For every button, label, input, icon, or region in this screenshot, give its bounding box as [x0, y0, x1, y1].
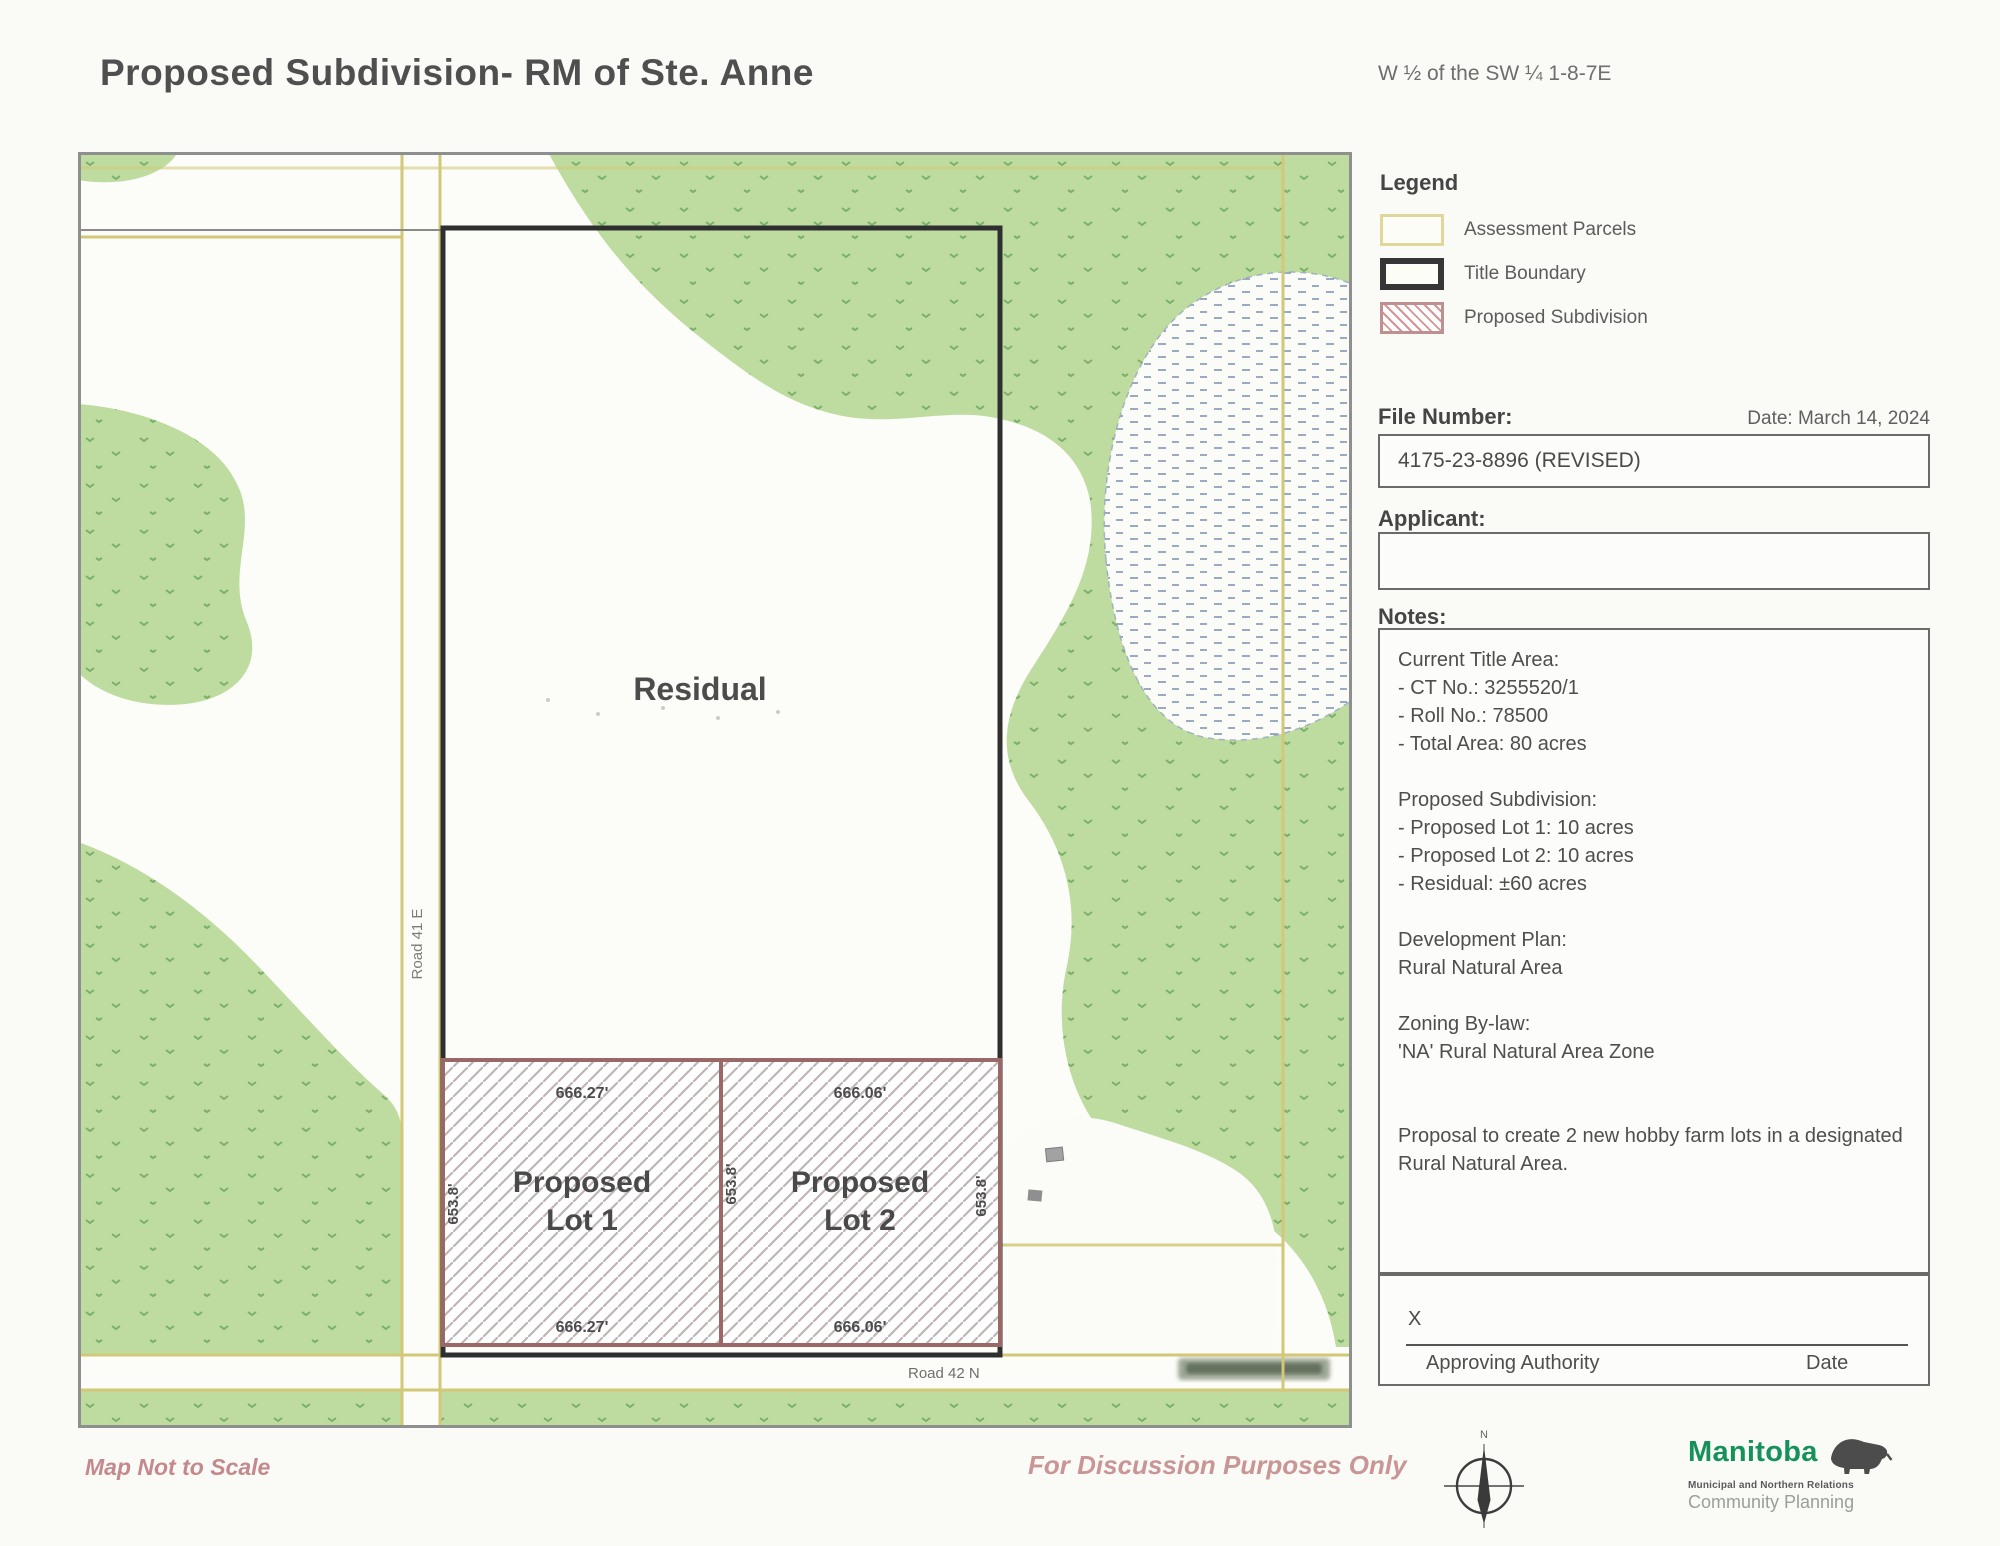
lot1-width-top: 666.27': [556, 1085, 609, 1102]
notes-line: Rural Natural Area: [1398, 954, 1914, 982]
notes-line: - CT No.: 3255520/1: [1398, 674, 1914, 702]
bison-icon: [1824, 1432, 1894, 1478]
approving-authority-label: Approving Authority: [1426, 1352, 1599, 1375]
lot2-depth-right: 653.8': [973, 1175, 990, 1216]
manitoba-logo: Manitoba Municipal and Northern Relation…: [1688, 1432, 1968, 1513]
signature-x-mark: X: [1408, 1308, 1421, 1331]
file-number-heading: File Number:: [1378, 404, 1512, 430]
road-42n-corridor: [78, 1355, 1352, 1390]
date-label: Date: March 14, 2024: [1620, 408, 1930, 430]
notes-line: - Roll No.: 78500: [1398, 702, 1914, 730]
discussion-purposes-note: For Discussion Purposes Only: [1028, 1450, 1407, 1481]
manitoba-wordmark: Manitoba: [1688, 1432, 1818, 1472]
notes-line: Development Plan:: [1398, 926, 1914, 954]
legal-description: W ½ of the SW ¼ 1-8-7E: [1378, 62, 1611, 86]
notes-line: - Proposed Lot 2: 10 acres: [1398, 842, 1914, 870]
notes-line: - Proposed Lot 1: 10 acres: [1398, 814, 1914, 842]
notes-heading: Notes:: [1378, 604, 1446, 630]
lot1-width-bottom: 666.27': [556, 1319, 609, 1336]
lot1-label-line1: Proposed: [513, 1166, 651, 1199]
scanned-subdivision-plan-page: Proposed Subdivision- RM of Ste. Anne W …: [0, 0, 2000, 1546]
signature-line: [1406, 1344, 1908, 1346]
compass-north-label: N: [1480, 1429, 1488, 1441]
proposed-subdivision-swatch: [1380, 302, 1444, 334]
lot2-label-line2: Lot 2: [824, 1204, 896, 1237]
road-41e-corridor: [402, 152, 440, 1428]
road-41e-label: Road 41 E: [409, 909, 426, 980]
legend-item-label: Title Boundary: [1464, 263, 1586, 285]
notes-line: Proposed Subdivision:: [1398, 786, 1914, 814]
lot2-label-line1: Proposed: [791, 1166, 929, 1199]
lot2-width-top: 666.06': [834, 1085, 887, 1102]
notes-line: Zoning By-law:: [1398, 1010, 1914, 1038]
logo-unit-text: Community Planning: [1688, 1492, 1968, 1513]
proposed-lots: [443, 1060, 1000, 1345]
legend-item-title-boundary: Title Boundary: [1380, 254, 1932, 294]
notes-line: - Residual: ±60 acres: [1398, 870, 1914, 898]
legend-item-proposed-subdivision: Proposed Subdivision: [1380, 298, 1932, 338]
logo-department-text: Municipal and Northern Relations: [1688, 1480, 1968, 1491]
north-arrow-compass: N: [1438, 1426, 1530, 1534]
page-title: Proposed Subdivision- RM of Ste. Anne: [100, 52, 814, 94]
notes-line: [1398, 758, 1914, 786]
notes-line: - Total Area: 80 acres: [1398, 730, 1914, 758]
legend-heading: Legend: [1380, 170, 1458, 196]
lot-depth-middle: 653.8': [723, 1163, 740, 1204]
signature-date-label: Date: [1806, 1352, 1848, 1375]
lot1-label-line2: Lot 1: [546, 1204, 618, 1237]
notes-line: 'NA' Rural Natural Area Zone: [1398, 1038, 1914, 1066]
lot2-width-bottom: 666.06': [834, 1319, 887, 1336]
applicant-field: [1378, 532, 1930, 590]
applicant-heading: Applicant:: [1378, 506, 1486, 532]
notes-line: Proposal to create 2 new hobby farm lots…: [1398, 1122, 1914, 1178]
road-42n-label: Road 42 N: [908, 1365, 980, 1382]
file-number-value: 4175-23-8896 (REVISED): [1398, 449, 1641, 473]
legend-item-assessment-parcels: Assessment Parcels: [1380, 210, 1932, 250]
title-boundary-swatch: [1380, 258, 1444, 290]
notes-line: [1398, 1094, 1914, 1122]
subdivision-map: Residual Road 41 E Road 42 N Proposed Lo…: [78, 152, 1352, 1428]
map-not-to-scale-note: Map Not to Scale: [85, 1454, 270, 1481]
assessment-parcels-swatch: [1380, 214, 1444, 246]
notes-line: [1398, 898, 1914, 926]
notes-line: Current Title Area:: [1398, 646, 1914, 674]
notes-field: Current Title Area: - CT No.: 3255520/1 …: [1378, 628, 1930, 1274]
illegible-credit-watermark: [1178, 1358, 1330, 1380]
lot1-depth-left: 653.8': [445, 1183, 462, 1224]
legend-item-label: Assessment Parcels: [1464, 219, 1636, 241]
residual-label: Residual: [633, 671, 766, 707]
file-number-field: 4175-23-8896 (REVISED): [1378, 434, 1930, 488]
notes-line: [1398, 1066, 1914, 1094]
notes-line: [1398, 982, 1914, 1010]
legend-item-label: Proposed Subdivision: [1464, 307, 1648, 329]
